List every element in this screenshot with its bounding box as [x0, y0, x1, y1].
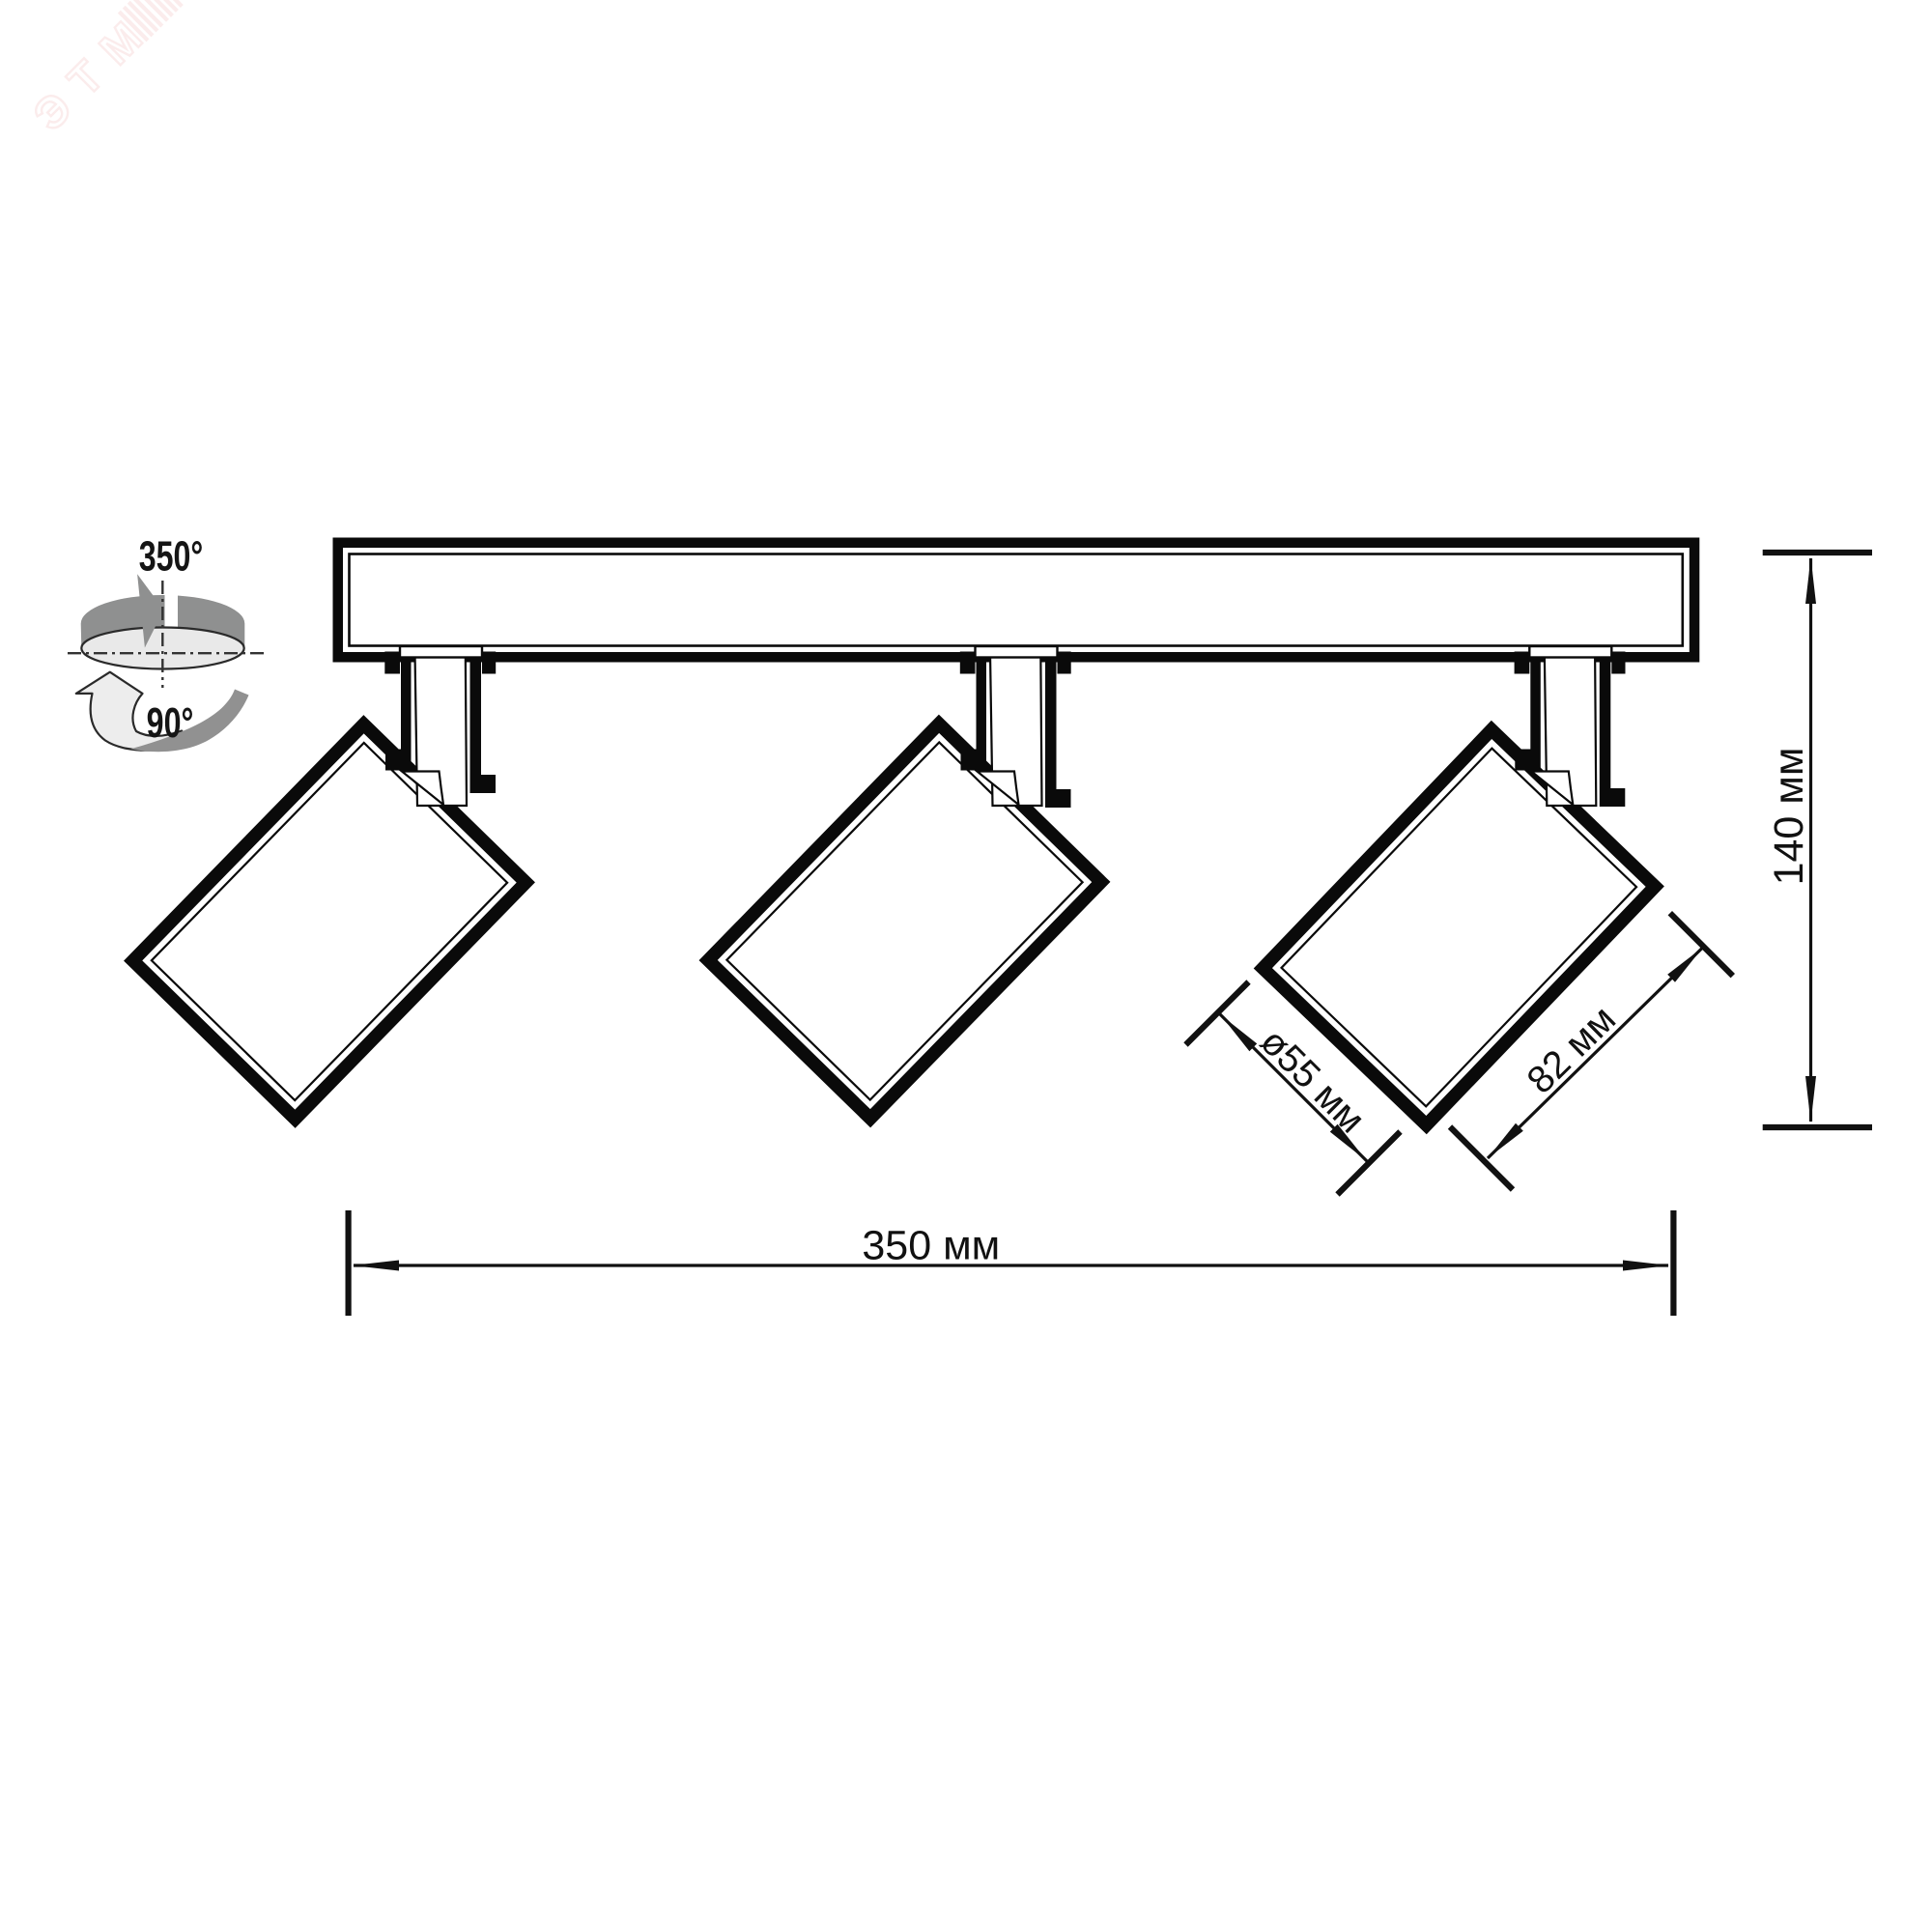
- svg-text:350 мм: 350 мм: [862, 1223, 1000, 1269]
- svg-text:90°: 90°: [147, 699, 194, 747]
- svg-text:140 мм: 140 мм: [1766, 748, 1812, 886]
